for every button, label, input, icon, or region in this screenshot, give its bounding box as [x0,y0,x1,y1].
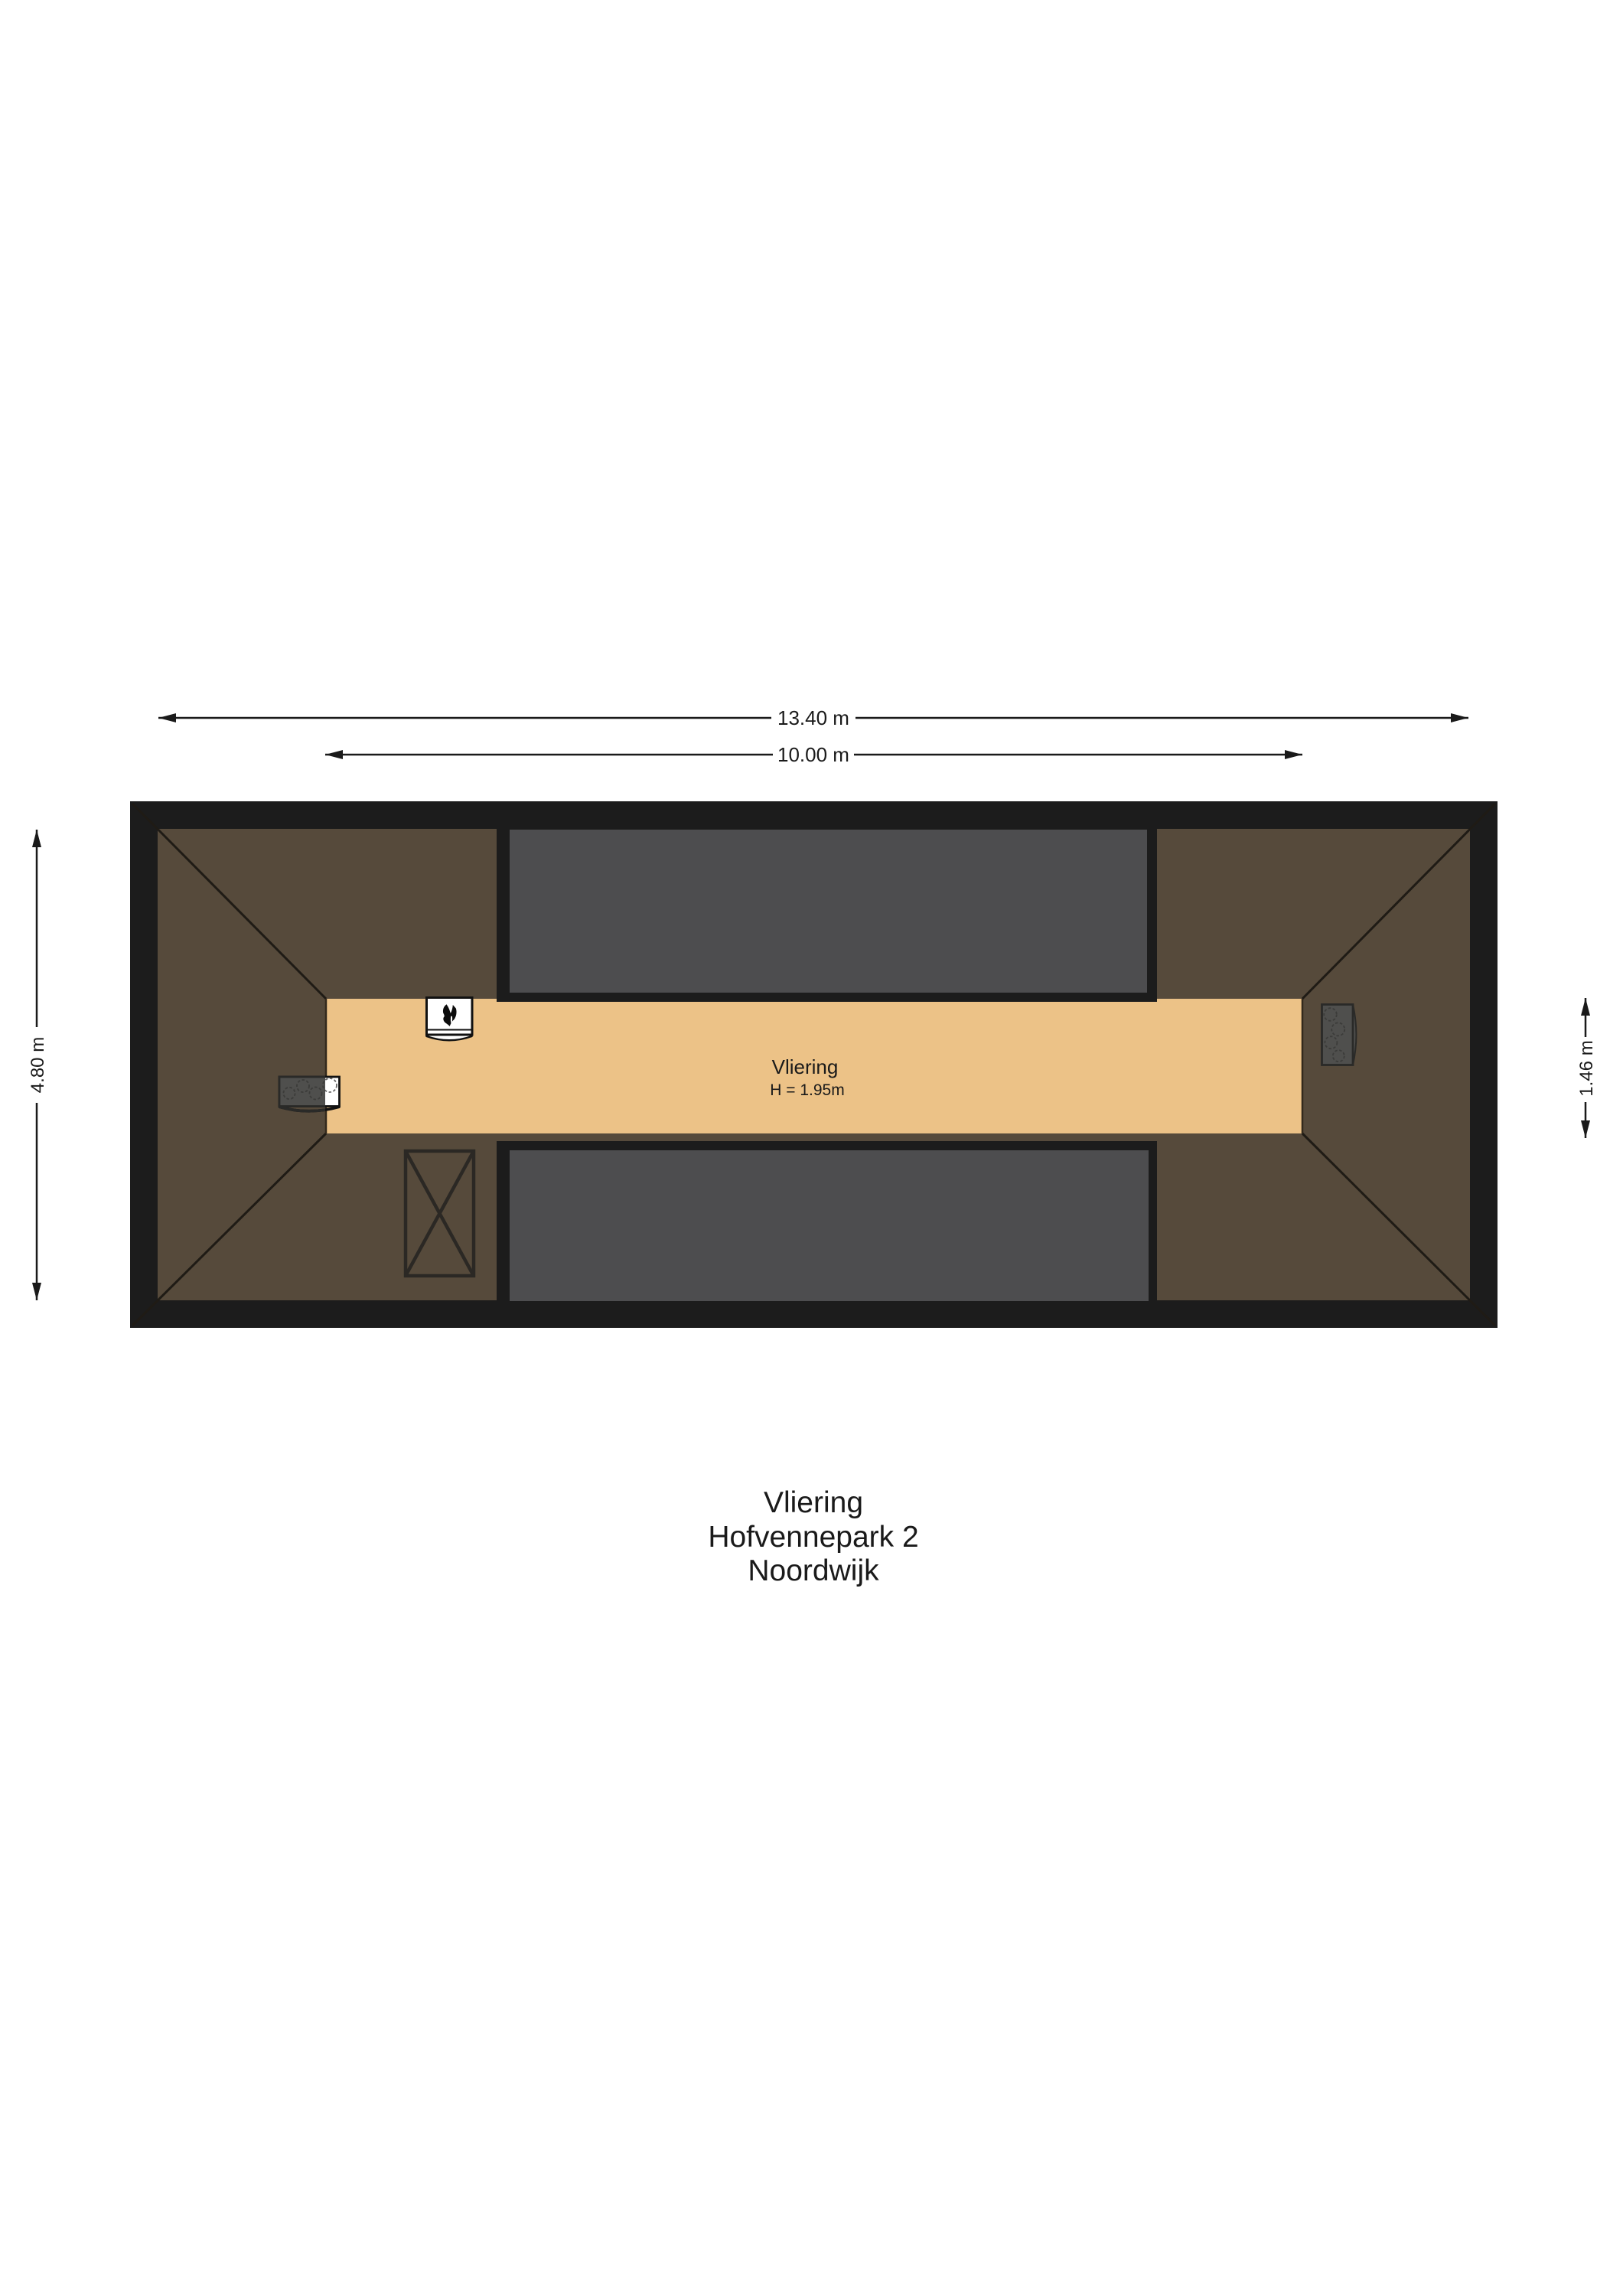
svg-text:Noordwijk: Noordwijk [748,1554,879,1587]
svg-text:13.40 m: 13.40 m [777,706,849,729]
svg-text:4.80 m: 4.80 m [28,1037,48,1093]
svg-text:H = 1.95m: H = 1.95m [770,1081,844,1099]
svg-text:10.00 m: 10.00 m [777,743,849,766]
svg-text:1.46 m: 1.46 m [1576,1040,1597,1096]
svg-text:Hofvennepark 2: Hofvennepark 2 [708,1521,918,1554]
svg-text:Vliering: Vliering [772,1055,839,1078]
svg-text:Vliering: Vliering [764,1486,863,1519]
